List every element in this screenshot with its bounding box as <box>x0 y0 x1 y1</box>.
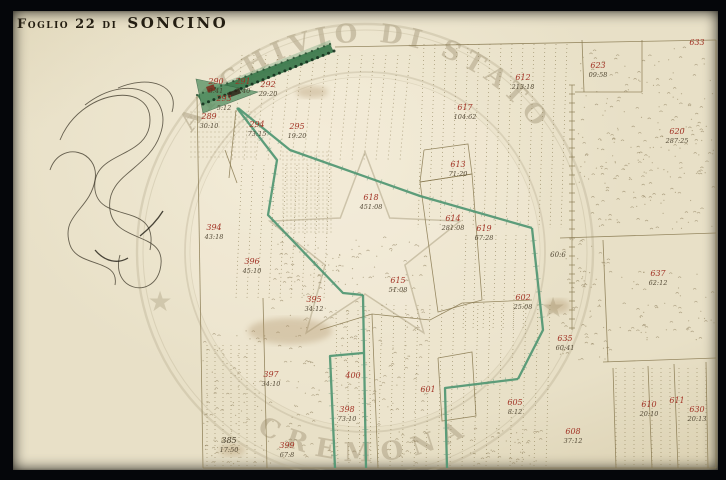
parcel-area: 20:10 <box>639 410 659 418</box>
parcel-label: 601 <box>420 385 435 394</box>
parcel-area: 451:08 <box>359 203 383 211</box>
parcel-number: 612 <box>515 73 530 82</box>
parcel-number: 633 <box>689 38 704 47</box>
parcel-area: 19:20 <box>288 132 307 140</box>
tree-dot <box>226 82 228 84</box>
tree-dot <box>202 92 204 94</box>
cadastral-map-scan: ARCHIVIO DI STATOCREMONA★★2903:412917:40… <box>0 0 726 480</box>
tree-dot <box>305 52 307 54</box>
parcel-number: 614 <box>445 214 460 223</box>
parcel-number: 394 <box>206 223 221 232</box>
parcel-number: 620 <box>669 127 684 136</box>
parcel-area: 51:08 <box>389 286 408 294</box>
parcel-area: 60:41 <box>556 344 575 352</box>
tree-dot <box>278 72 281 75</box>
parcel-label: 60837:12 <box>564 427 583 445</box>
tree-dot <box>322 54 325 57</box>
parcel-number: 605 <box>507 398 522 407</box>
parcel-area: 8:12 <box>508 408 523 416</box>
parcel-area: 43:18 <box>204 233 224 241</box>
parcel-number: 608 <box>565 427 580 436</box>
parcel-area: 17:50 <box>220 446 239 454</box>
stamp-star-left: ★ <box>147 285 172 318</box>
tree-dot <box>256 71 258 73</box>
sheet-title-name: SONCINO <box>127 14 228 32</box>
parcel-area: 104:62 <box>454 113 477 121</box>
parcel-area: 25:08 <box>513 303 533 311</box>
parcel-label: 63560:41 <box>556 334 575 352</box>
parcel-number: 630 <box>689 405 704 414</box>
tree-dot <box>281 61 283 63</box>
parcel-area: 34:12 <box>305 305 324 313</box>
parcel-number: 292 <box>259 80 275 89</box>
parcel-number: 397 <box>263 370 279 379</box>
parcel-number: 613 <box>450 160 465 169</box>
map-layers: ARCHIVIO DI STATOCREMONA★★2903:412917:40… <box>50 18 716 480</box>
tree-dot <box>323 45 325 47</box>
parcel-number: 293 <box>215 94 231 103</box>
parcel-label: 29229:20 <box>258 80 278 98</box>
parcel-label: 633 <box>689 38 704 47</box>
parcel-number: 635 <box>557 334 572 343</box>
tree-dot <box>202 103 205 106</box>
parcel-number: 618 <box>363 193 378 202</box>
parcel-area: 5:12 <box>217 104 232 112</box>
parcel-area: 29:20 <box>258 90 278 98</box>
parcel-area: 67:8 <box>280 451 295 459</box>
parcel-label: 6058:12 <box>507 398 522 416</box>
parcel-area: 73:15 <box>248 130 267 138</box>
parcel-number: 398 <box>339 405 354 414</box>
tree-dot <box>251 83 254 86</box>
tree-dot <box>311 58 314 61</box>
parcel-number: 617 <box>457 103 473 112</box>
parcel-number: 623 <box>590 61 605 70</box>
parcel-area: 45:10 <box>242 267 262 275</box>
road-ladder-marks <box>569 85 575 330</box>
parcel-number: 610 <box>641 400 656 409</box>
parcel-number: 289 <box>200 112 216 121</box>
tree-dot <box>316 56 319 59</box>
sheet-title-prefix: Foglio 22 di <box>17 17 117 32</box>
parcel-number: 611 <box>669 396 684 405</box>
tree-dot <box>305 61 308 64</box>
pen-flourishes <box>50 82 173 288</box>
tree-dot <box>250 73 252 75</box>
parcel-number: 291 <box>234 77 250 86</box>
tree-dot <box>207 100 210 103</box>
map-note: 60:6 <box>550 251 566 259</box>
parcel-number: 295 <box>288 122 304 131</box>
tree-dot <box>333 50 336 53</box>
parcel-label: 620287:25 <box>665 127 689 145</box>
parcel-area: 37:12 <box>564 437 583 445</box>
tree-dot <box>212 98 215 101</box>
tree-dot <box>256 80 259 83</box>
parcel-number: 602 <box>515 293 530 302</box>
parcel-area: 7:40 <box>236 87 251 95</box>
parcel-label: 63762:12 <box>649 269 668 287</box>
tree-dot <box>273 74 276 77</box>
parcel-area: 67:28 <box>475 234 494 242</box>
parcel-number: 294 <box>248 120 264 129</box>
parcel-label: 61020:10 <box>639 400 659 418</box>
parcel-number: 290 <box>207 77 223 86</box>
tree-dot <box>317 48 319 50</box>
parcel-area: 281:08 <box>441 224 465 232</box>
tree-dot <box>275 64 277 66</box>
tree-dot <box>294 65 297 68</box>
tree-dot <box>267 76 270 79</box>
parcel-label: 63020:13 <box>687 405 707 423</box>
parcel-number: 601 <box>420 385 435 394</box>
tree-dot <box>232 80 234 82</box>
parcel-area: 71:20 <box>449 170 468 178</box>
tree-dot <box>196 94 198 96</box>
parcel-area: 30:10 <box>200 122 219 130</box>
tree-dot <box>287 59 289 61</box>
tree-dot <box>300 63 303 66</box>
parcel-area: 09:58 <box>589 71 608 79</box>
parcel-number: 395 <box>306 295 321 304</box>
parcel-area: 20:13 <box>687 415 707 423</box>
parcel-number: 637 <box>650 269 666 278</box>
tree-dot <box>311 50 313 52</box>
parcel-number: 399 <box>279 441 294 450</box>
tree-dot <box>262 68 264 70</box>
tree-dot <box>283 69 286 72</box>
tree-dot <box>268 66 270 68</box>
tree-dot <box>293 57 295 59</box>
parcel-label: 611 <box>669 396 684 405</box>
sheet-title: Foglio 22 di SONCINO <box>17 13 228 32</box>
parcel-area: 62:12 <box>649 279 668 287</box>
tree-dot <box>327 52 330 55</box>
parcel-area: 34:10 <box>262 380 281 388</box>
parcel-area: 73:10 <box>338 415 357 423</box>
parcel-area: 287:25 <box>665 137 689 145</box>
parcel-number: 615 <box>390 276 405 285</box>
tree-dot <box>299 55 301 57</box>
parcel-number: 619 <box>476 224 491 233</box>
map-drawing: ARCHIVIO DI STATOCREMONA★★2903:412917:40… <box>0 0 726 480</box>
parcel-number: 385 <box>221 436 236 445</box>
parcel-area: 213:18 <box>511 83 535 91</box>
tree-dot <box>289 67 292 70</box>
parcel-label: 400 <box>344 371 360 380</box>
tree-dot <box>329 43 331 45</box>
parcel-number: 400 <box>344 371 360 380</box>
parcel-number: 396 <box>244 257 259 266</box>
